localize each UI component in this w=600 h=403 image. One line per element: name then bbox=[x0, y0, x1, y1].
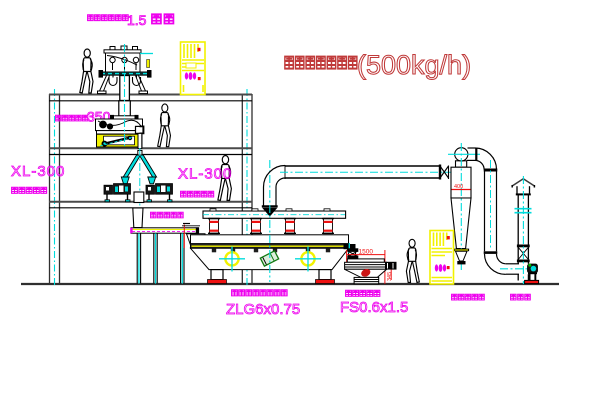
svg-text:345: 345 bbox=[387, 272, 393, 281]
svg-text:XL-300: XL-300 bbox=[178, 166, 232, 183]
svg-text:1500: 1500 bbox=[359, 249, 374, 256]
svg-text:FS0.6x1.5: FS0.6x1.5 bbox=[340, 299, 408, 316]
svg-text:400: 400 bbox=[454, 184, 463, 190]
svg-text:(500kg/h): (500kg/h) bbox=[357, 50, 471, 80]
svg-text:XL-300: XL-300 bbox=[11, 163, 65, 180]
svg-text:1.5: 1.5 bbox=[127, 12, 147, 28]
svg-text:ZLG6x0.75: ZLG6x0.75 bbox=[226, 301, 300, 318]
